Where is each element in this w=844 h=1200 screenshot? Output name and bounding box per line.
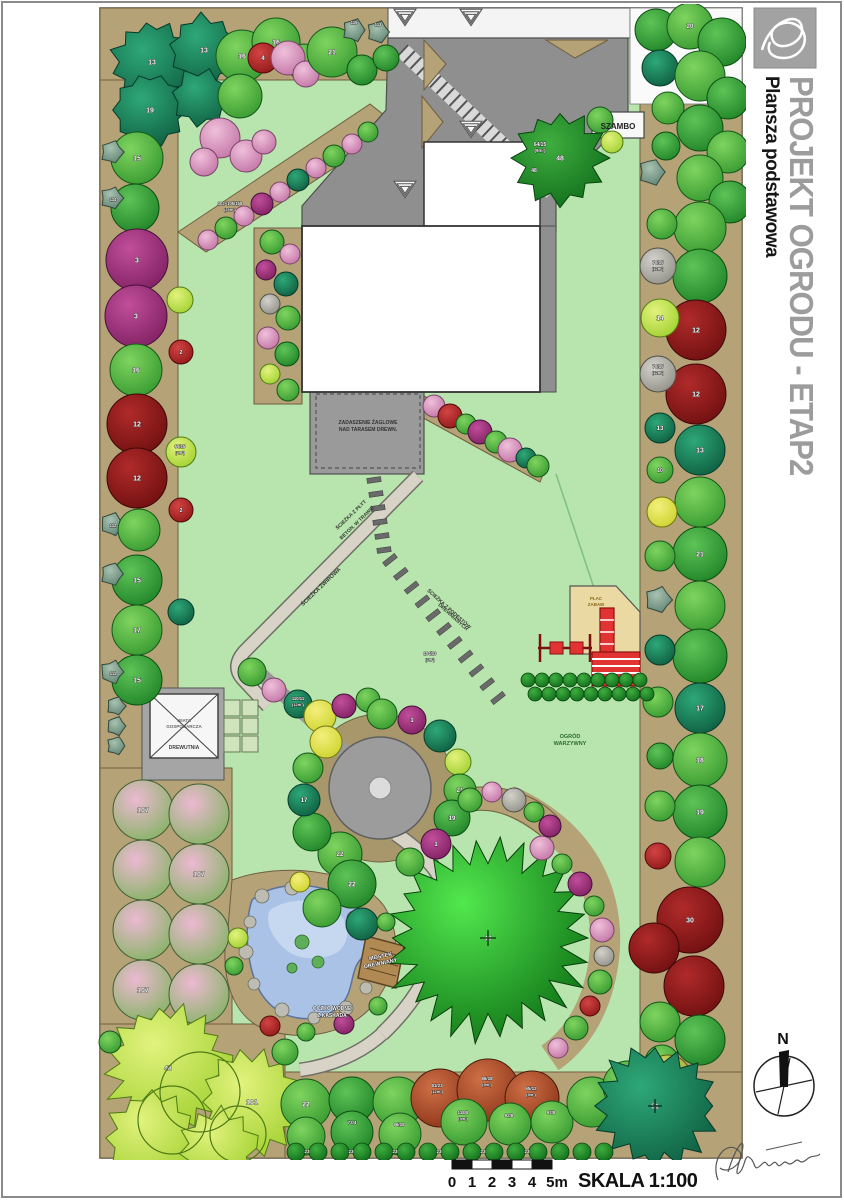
hedge-bush [556, 687, 570, 701]
tree [251, 193, 273, 215]
tree [167, 287, 193, 313]
hedge-bush [529, 1143, 547, 1161]
label: (4m²) [175, 450, 185, 455]
label: WARZYWNY [554, 741, 587, 747]
tree [169, 904, 229, 964]
label: 2 [488, 1174, 496, 1191]
tree [441, 1099, 487, 1145]
hedge-bush [535, 673, 549, 687]
tree: 19 [673, 785, 727, 839]
tree: 107 [113, 780, 173, 840]
label: 115 [351, 20, 358, 25]
plan-sheet: 4913131916164212048121412131310211718193… [0, 0, 844, 1200]
label: 110/11 [292, 696, 305, 701]
svg-text:12: 12 [692, 327, 700, 334]
tree [274, 272, 298, 296]
label: 112 [110, 523, 117, 528]
shape [275, 1003, 289, 1017]
hedge-bush [485, 1143, 503, 1161]
svg-text:18: 18 [696, 757, 704, 764]
label: DREWUTNIA [169, 745, 200, 751]
tree [552, 854, 572, 874]
label: 86/18 [393, 1122, 405, 1127]
hedge-bush [397, 1143, 415, 1161]
label: 1 [468, 1174, 476, 1191]
tree [280, 244, 300, 264]
label: SKALA 1:100 [578, 1170, 698, 1192]
shape [779, 1050, 789, 1087]
tree [458, 788, 482, 812]
svg-text:16: 16 [132, 367, 140, 374]
scalebar: 012345mSKALA 1:100 [448, 1160, 698, 1192]
tree [588, 970, 612, 994]
hedge-bush [598, 687, 612, 701]
tree [674, 202, 726, 254]
label: ZABAW [588, 602, 605, 607]
svg-text:15: 15 [133, 577, 141, 584]
svg-text:20: 20 [687, 24, 694, 30]
svg-text:17: 17 [133, 627, 141, 634]
label: 114 [110, 197, 117, 202]
svg-text:10: 10 [657, 468, 663, 474]
tree [358, 122, 378, 142]
svg-text:21: 21 [328, 49, 336, 56]
label: (9m²) [535, 148, 547, 153]
tree [647, 209, 677, 239]
tree [647, 743, 673, 769]
shape [369, 777, 391, 799]
svg-text:14: 14 [657, 316, 664, 322]
svg-text:13: 13 [200, 47, 208, 54]
svg-text:21: 21 [696, 551, 704, 558]
tree [99, 1031, 121, 1053]
tree [272, 1039, 298, 1065]
tree [260, 1016, 280, 1036]
label: 23 [436, 1149, 442, 1154]
label: 86/18 [481, 1076, 493, 1081]
tree [323, 145, 345, 167]
logo [754, 8, 816, 68]
svg-text:19: 19 [146, 107, 154, 114]
shape [255, 889, 269, 903]
label: 5m [546, 1174, 568, 1191]
shape [452, 1160, 472, 1169]
svg-text:22: 22 [302, 1101, 310, 1108]
tree [652, 132, 680, 160]
tree [675, 837, 725, 887]
hedge-bush [507, 1143, 525, 1161]
tree [489, 1103, 531, 1145]
tree [373, 45, 399, 71]
hedge-bush [573, 1143, 591, 1161]
tree: 1 [398, 706, 426, 734]
hedge-bush [591, 673, 605, 687]
shape [570, 642, 583, 654]
tree [673, 629, 727, 683]
shape [244, 916, 256, 928]
label: 0 [448, 1174, 456, 1191]
svg-text:107: 107 [137, 987, 149, 994]
tree [293, 753, 323, 783]
hedge-bush [528, 687, 542, 701]
tree [118, 509, 160, 551]
tree [306, 158, 326, 178]
label: ZADASZENIE ŻAGLOWE [339, 419, 399, 426]
shape [472, 1160, 492, 1169]
tree [277, 379, 299, 401]
tree [270, 182, 290, 202]
tree [260, 294, 280, 314]
tree [675, 477, 725, 527]
tree [367, 699, 397, 729]
svg-text:12: 12 [692, 391, 700, 398]
tree [482, 782, 502, 802]
hedge-bush [640, 687, 654, 701]
label: (5m²) [458, 1116, 468, 1121]
tree [377, 913, 395, 931]
label: PLAC [590, 596, 603, 601]
label: Z KASKADĄ [317, 1013, 347, 1019]
tree [218, 74, 262, 118]
tree [675, 1015, 725, 1065]
hedge-bush [331, 1143, 349, 1161]
tree [642, 50, 678, 86]
tree [234, 206, 254, 226]
label: 118/8 [457, 1110, 469, 1115]
tree: 12 [107, 448, 167, 508]
shape [242, 700, 258, 716]
tree [584, 896, 604, 916]
tree: 3 [106, 229, 168, 291]
plan-layers: 4913131916164212048121412131310211718193… [99, 3, 751, 1185]
label: 97/8 [547, 1110, 556, 1115]
label: 111 [110, 671, 117, 676]
shape [248, 978, 260, 990]
tree [568, 872, 592, 896]
svg-text:17: 17 [696, 705, 704, 712]
shape [550, 642, 563, 654]
hedge-bush [419, 1143, 437, 1161]
tree: 13 [675, 425, 725, 475]
hedge-bush [309, 1143, 327, 1161]
label: (5m²) [526, 1092, 536, 1097]
tree [640, 1002, 680, 1042]
svg-text:107: 107 [193, 871, 205, 878]
shape [242, 736, 258, 752]
label: 65/12 [525, 1086, 537, 1091]
tree: 2 [169, 340, 193, 364]
svg-text:3: 3 [135, 257, 139, 264]
tree: 15 [112, 555, 162, 605]
tree [531, 1101, 573, 1143]
tree [675, 581, 725, 631]
svg-text:15: 15 [133, 677, 141, 684]
hedge-bush [549, 673, 563, 687]
svg-text:101: 101 [246, 1099, 258, 1106]
shape [224, 718, 240, 734]
tree [539, 815, 561, 837]
hedge-bush [463, 1143, 481, 1161]
label: N [777, 1031, 789, 1048]
shape [360, 982, 372, 994]
tree [190, 148, 218, 176]
tree: 107 [113, 960, 173, 1020]
tree [225, 957, 243, 975]
tree [347, 55, 377, 85]
tree [548, 1038, 568, 1058]
hedge-bush [521, 673, 535, 687]
tree [530, 836, 554, 860]
tree [169, 784, 229, 844]
tree [260, 364, 280, 384]
shape [295, 935, 309, 949]
svg-text:13: 13 [696, 447, 704, 454]
tree [198, 230, 218, 250]
label: (12m²) [292, 702, 305, 707]
svg-text:48: 48 [556, 155, 564, 162]
label: 4 [528, 1174, 537, 1191]
tree [238, 658, 266, 686]
tree: 1 [421, 829, 451, 859]
hedge-bush [441, 1143, 459, 1161]
label: (9m²) [482, 1082, 492, 1087]
label: GOSPODARCZA [166, 724, 202, 729]
svg-text:22: 22 [348, 881, 356, 888]
tree: 17 [675, 683, 725, 733]
svg-text:3: 3 [134, 313, 138, 320]
label: OGRÓD [560, 732, 581, 740]
shape [224, 700, 240, 716]
label: 23 [304, 1149, 310, 1154]
label: 73/4 [348, 1120, 357, 1125]
label: (7m²) [425, 657, 435, 662]
shape [532, 1160, 552, 1169]
shape [540, 226, 556, 392]
tree: 18 [673, 733, 727, 787]
hedge-bush [626, 687, 640, 701]
tree [310, 726, 342, 758]
label: 104/13 [424, 651, 437, 656]
label: 23 [480, 1149, 486, 1154]
tree [293, 813, 331, 851]
tree [276, 306, 300, 330]
shape [302, 226, 540, 392]
svg-text:19: 19 [696, 809, 704, 816]
tree: 10 [647, 457, 673, 483]
hedge-bush [595, 1143, 613, 1161]
hedge-bush [612, 687, 626, 701]
label: OCZKO WODNE [313, 1006, 352, 1012]
svg-text:22: 22 [337, 852, 344, 858]
tree [287, 169, 309, 191]
shape [242, 718, 258, 734]
tree [396, 848, 424, 876]
tree [564, 1016, 588, 1040]
shape [766, 1142, 802, 1150]
tree [215, 217, 237, 239]
tree [647, 497, 677, 527]
tree [113, 900, 173, 960]
tree: 107 [169, 844, 229, 904]
tree: 17 [112, 605, 162, 655]
tree [332, 694, 356, 718]
svg-text:12: 12 [133, 421, 141, 428]
shape [388, 8, 630, 38]
tree [645, 843, 671, 869]
hedge-bush [563, 673, 577, 687]
hedge-bush [619, 673, 633, 687]
tree [502, 788, 526, 812]
label: 70/15 [652, 364, 664, 369]
label: NAD TARASEM DREWN. [339, 427, 398, 433]
tree: 16 [110, 344, 162, 396]
hedge-bush [353, 1143, 371, 1161]
hedge-bush [551, 1143, 569, 1161]
label: 3 [508, 1174, 516, 1191]
label: SZAMBO [601, 122, 636, 131]
hedge-bush [570, 687, 584, 701]
tree [445, 749, 471, 775]
tree [275, 342, 299, 366]
svg-text:2: 2 [180, 508, 183, 514]
shape [512, 1160, 532, 1169]
tree [346, 908, 378, 940]
tree: 14 [641, 299, 679, 337]
tree [256, 260, 276, 280]
hedge-bush [542, 687, 556, 701]
garden-plan-drawing: 4913131916164212048121412131310211718193… [0, 0, 844, 1200]
label: 23 [524, 1149, 530, 1154]
plan-title: PROJEKT OGRODU - ETAP2 [782, 76, 820, 475]
label: 102+105/158 [218, 201, 243, 206]
label: 23 [348, 1149, 354, 1154]
svg-text:107: 107 [137, 807, 149, 814]
shape [287, 963, 297, 973]
tree: 21 [673, 527, 727, 581]
label: 113 [375, 22, 382, 27]
svg-text:13: 13 [657, 426, 664, 432]
tree [252, 130, 276, 154]
tree [168, 599, 194, 625]
label: 92/8 [505, 1113, 514, 1118]
tree [228, 928, 248, 948]
tree [673, 249, 727, 303]
shape [492, 1160, 512, 1169]
shape [224, 736, 240, 752]
tree: 3 [105, 285, 167, 347]
signature [716, 1142, 820, 1180]
hedge-bush [605, 673, 619, 687]
north: N [754, 1031, 814, 1116]
svg-text:16: 16 [238, 53, 246, 60]
tree [601, 131, 623, 153]
tree [645, 541, 675, 571]
label: (25m²) [224, 207, 237, 212]
tree [262, 678, 286, 702]
label: (12m²) [431, 1089, 444, 1094]
svg-text:2: 2 [180, 350, 183, 356]
tree [424, 720, 456, 752]
hedge-bush [584, 687, 598, 701]
label: 81/23 [431, 1083, 443, 1088]
tree [290, 872, 310, 892]
hedge-bush [633, 673, 647, 687]
svg-text:30: 30 [686, 917, 694, 924]
hedge-bush [577, 673, 591, 687]
hedge-bush [287, 1143, 305, 1161]
hedge-bush [375, 1143, 393, 1161]
plan-subtitle: Plansza podstawowa [760, 76, 782, 257]
label: 70/15 [652, 260, 664, 265]
tree [645, 791, 675, 821]
label: 59/15 [175, 444, 186, 449]
tree [580, 996, 600, 1016]
tree [369, 997, 387, 1015]
tree: 2 [169, 498, 193, 522]
tree [113, 840, 173, 900]
tree [590, 918, 614, 942]
tree: 12 [107, 394, 167, 454]
label: (12m²) [652, 266, 665, 271]
label: (12m²) [652, 370, 665, 375]
shape [312, 956, 324, 968]
tree [594, 946, 614, 966]
label: 48 [531, 168, 537, 174]
tree: 13 [645, 413, 675, 443]
tree [527, 455, 549, 477]
tree [297, 1023, 315, 1041]
label: 23 [392, 1149, 398, 1154]
svg-text:17: 17 [301, 798, 308, 804]
tree [303, 889, 341, 927]
label: WIATA [177, 718, 192, 723]
tree [645, 635, 675, 665]
tree [257, 327, 279, 349]
tree: 17 [288, 784, 320, 816]
svg-text:19: 19 [449, 816, 456, 822]
svg-text:12: 12 [133, 475, 141, 482]
svg-text:13: 13 [148, 59, 156, 66]
svg-text:15: 15 [133, 155, 141, 162]
